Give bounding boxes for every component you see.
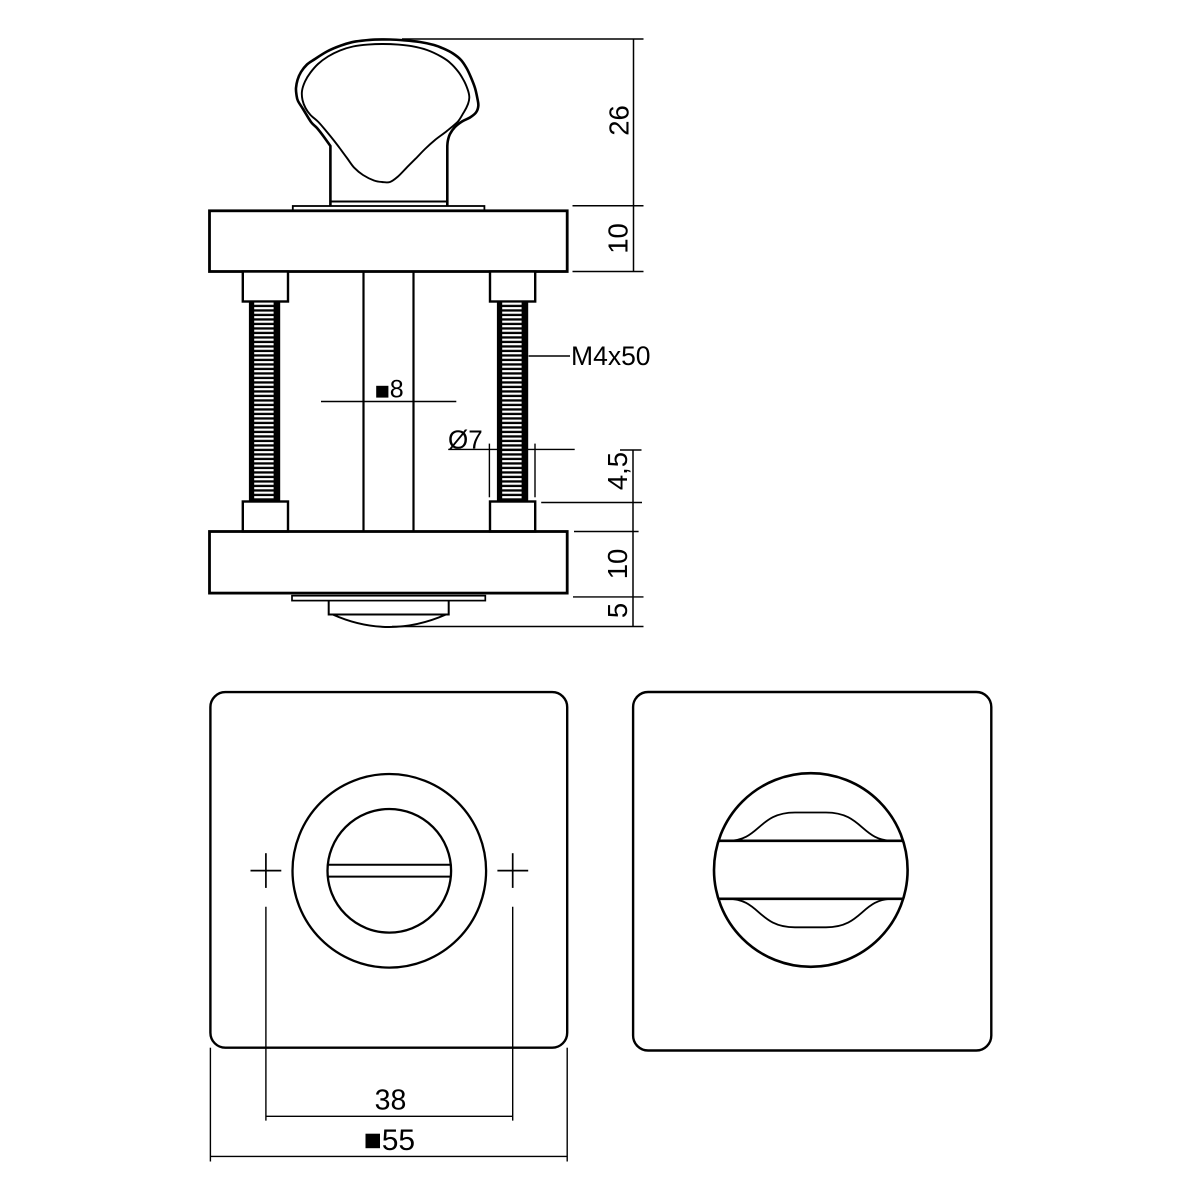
svg-text:8: 8 [390, 376, 404, 404]
svg-text:10: 10 [603, 223, 634, 254]
svg-text:5: 5 [602, 603, 633, 618]
svg-text:M4x50: M4x50 [571, 341, 651, 371]
svg-text:26: 26 [604, 105, 635, 136]
svg-text:55: 55 [382, 1124, 415, 1157]
svg-text:38: 38 [375, 1085, 407, 1117]
svg-text:4,5: 4,5 [602, 452, 633, 490]
svg-text:10: 10 [602, 549, 633, 580]
